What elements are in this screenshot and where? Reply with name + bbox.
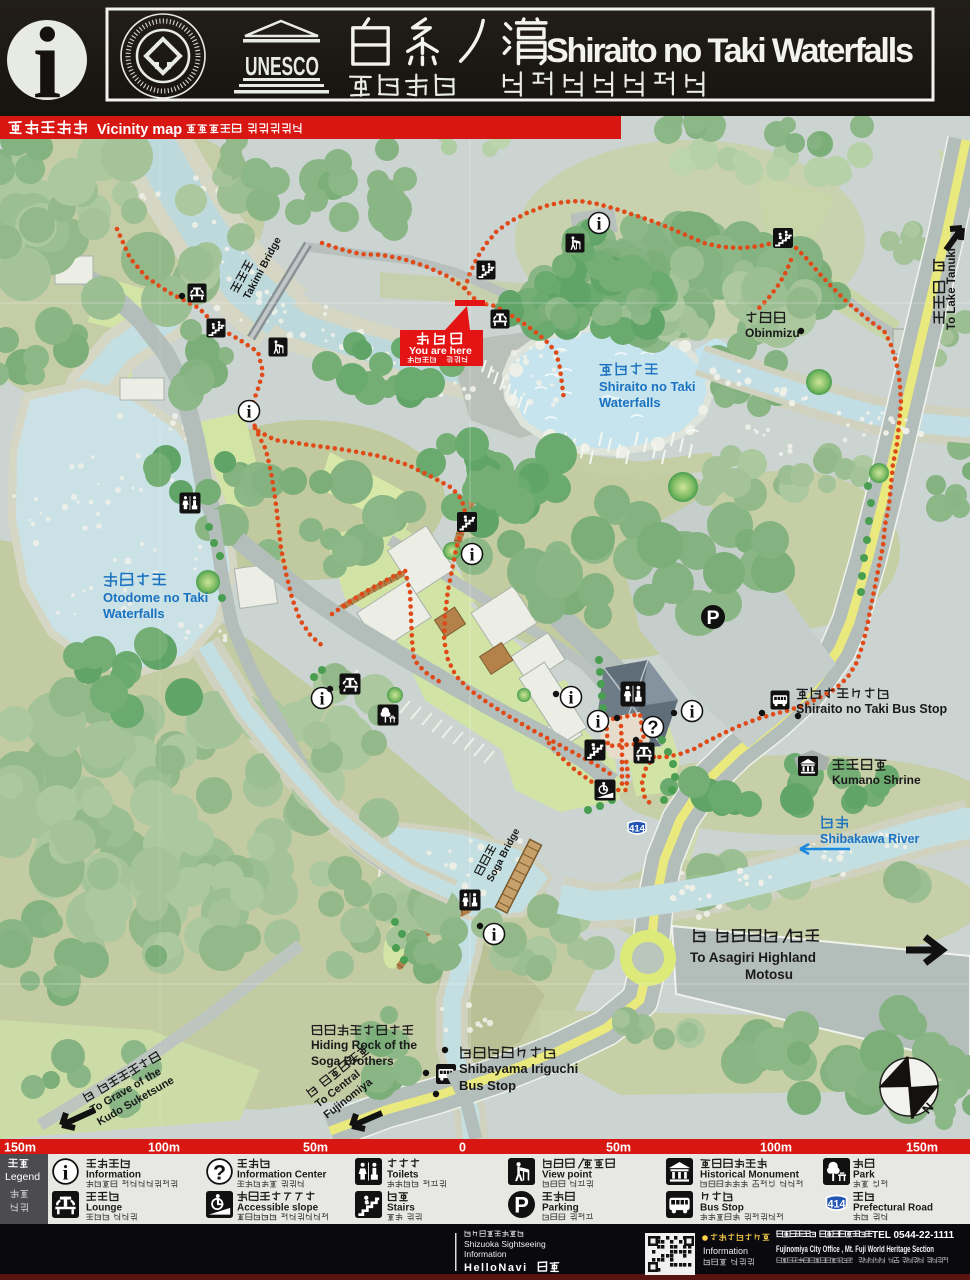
svg-text:Soga Brothers: Soga Brothers — [311, 1054, 394, 1068]
svg-text:Lounge: Lounge — [86, 1203, 123, 1214]
svg-text:100m: 100m — [148, 1141, 180, 1155]
svg-text:Hiding Rock of the: Hiding Rock of the — [311, 1038, 417, 1052]
svg-text:To Asagiri Highland: To Asagiri Highland — [690, 950, 816, 965]
svg-text:Waterfalls: Waterfalls — [103, 606, 165, 621]
svg-text:Information: Information — [86, 1170, 141, 1181]
svg-text:0: 0 — [459, 1141, 466, 1155]
svg-text:Fujinomiya City Office , Mt. F: Fujinomiya City Office , Mt. Fuji World … — [776, 1244, 934, 1254]
svg-text:150m: 150m — [4, 1141, 36, 1155]
svg-text:Information: Information — [464, 1249, 507, 1259]
svg-text:100m: 100m — [760, 1141, 792, 1155]
svg-text:50m: 50m — [606, 1141, 631, 1155]
svg-text:Kumano Shrine: Kumano Shrine — [832, 773, 921, 787]
svg-text:Accessible slope: Accessible slope — [237, 1203, 319, 1214]
svg-text:Shiraito no Taki Bus Stop: Shiraito no Taki Bus Stop — [796, 702, 948, 716]
svg-text:Bus Stop: Bus Stop — [459, 1078, 516, 1093]
svg-text:Historical Monument: Historical Monument — [700, 1170, 800, 1181]
svg-text:Vicinity map: Vicinity map — [97, 122, 182, 138]
svg-text:Parking: Parking — [542, 1203, 579, 1214]
svg-text:Toilets: Toilets — [387, 1170, 419, 1181]
svg-text:Bus Stop: Bus Stop — [700, 1203, 744, 1214]
svg-text:Legend: Legend — [5, 1171, 40, 1183]
svg-text:Information: Information — [703, 1246, 748, 1256]
svg-text:Motosu: Motosu — [745, 967, 793, 982]
svg-text:You are here: You are here — [409, 345, 472, 357]
svg-text:Shibayama Iriguchi: Shibayama Iriguchi — [459, 1061, 578, 1076]
svg-text:TEL 0544-22-1111: TEL 0544-22-1111 — [872, 1230, 955, 1241]
svg-text:Prefectural Road: Prefectural Road — [853, 1203, 933, 1214]
svg-text:50m: 50m — [303, 1141, 328, 1155]
svg-text:Information Center: Information Center — [237, 1170, 327, 1181]
svg-text:i: i — [33, 7, 61, 120]
svg-text:Obinmizu: Obinmizu — [745, 326, 800, 340]
svg-text:Park: Park — [853, 1170, 875, 1181]
svg-text:150m: 150m — [906, 1141, 938, 1155]
svg-text:Shiraito no Taki: Shiraito no Taki — [599, 379, 696, 394]
svg-text:Shiraito no Taki Waterfalls: Shiraito no Taki Waterfalls — [546, 32, 914, 70]
svg-text:View point: View point — [542, 1170, 592, 1181]
svg-text:UNESCO: UNESCO — [245, 51, 319, 81]
svg-text:Shizuoka Sightseeing: Shizuoka Sightseeing — [464, 1239, 546, 1249]
svg-text:HelloNavi: HelloNavi — [464, 1262, 528, 1274]
svg-text:Waterfalls: Waterfalls — [599, 395, 661, 410]
svg-text:To Lake Tanuki: To Lake Tanuki — [946, 248, 958, 330]
svg-text:Shibakawa River: Shibakawa River — [820, 832, 919, 846]
svg-text:Otodome no Taki: Otodome no Taki — [103, 590, 208, 605]
svg-text:Stairs: Stairs — [387, 1203, 415, 1214]
